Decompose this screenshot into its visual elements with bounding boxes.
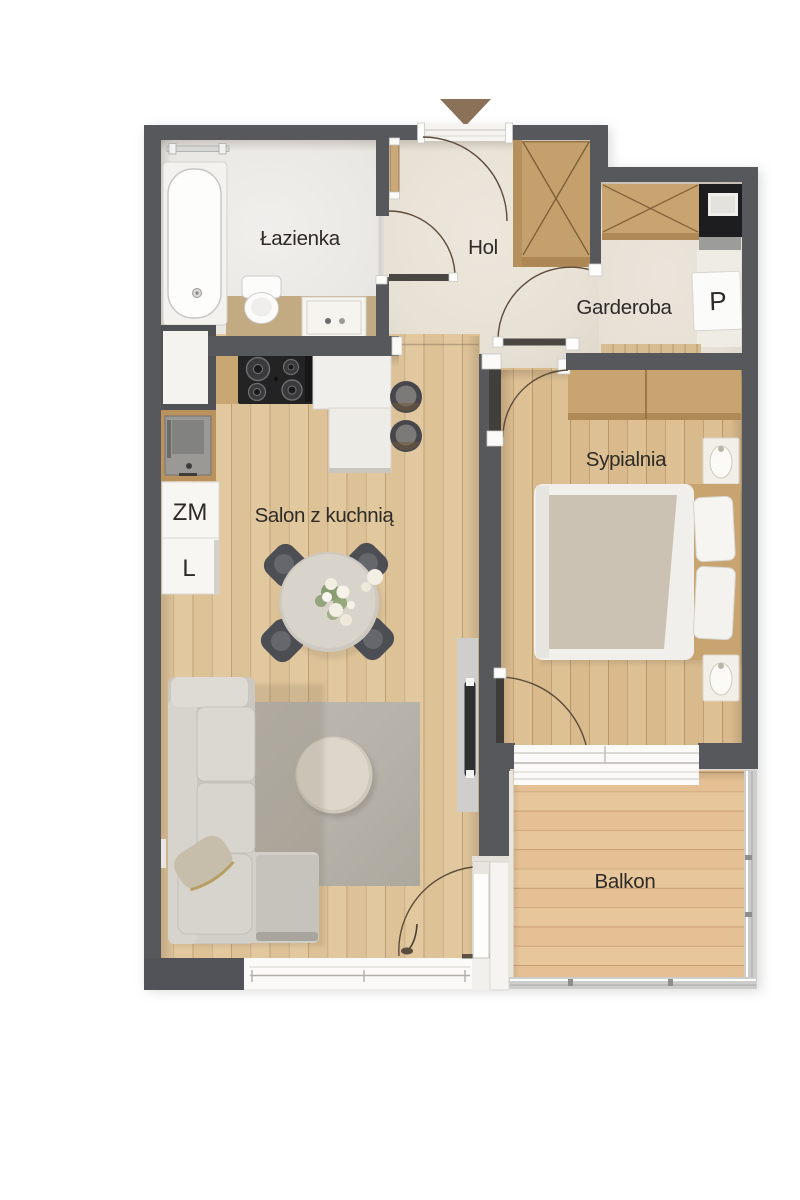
svg-text:P: P (709, 286, 727, 317)
svg-text:ZM: ZM (173, 499, 208, 526)
svg-text:Sypialnia: Sypialnia (586, 448, 667, 471)
svg-text:L: L (182, 555, 195, 582)
svg-text:Balkon: Balkon (595, 870, 656, 893)
svg-text:Salon z kuchnią: Salon z kuchnią (255, 504, 395, 527)
svg-text:Łazienka: Łazienka (260, 227, 341, 250)
svg-text:Hol: Hol (468, 236, 498, 259)
svg-text:Garderoba: Garderoba (576, 296, 672, 319)
